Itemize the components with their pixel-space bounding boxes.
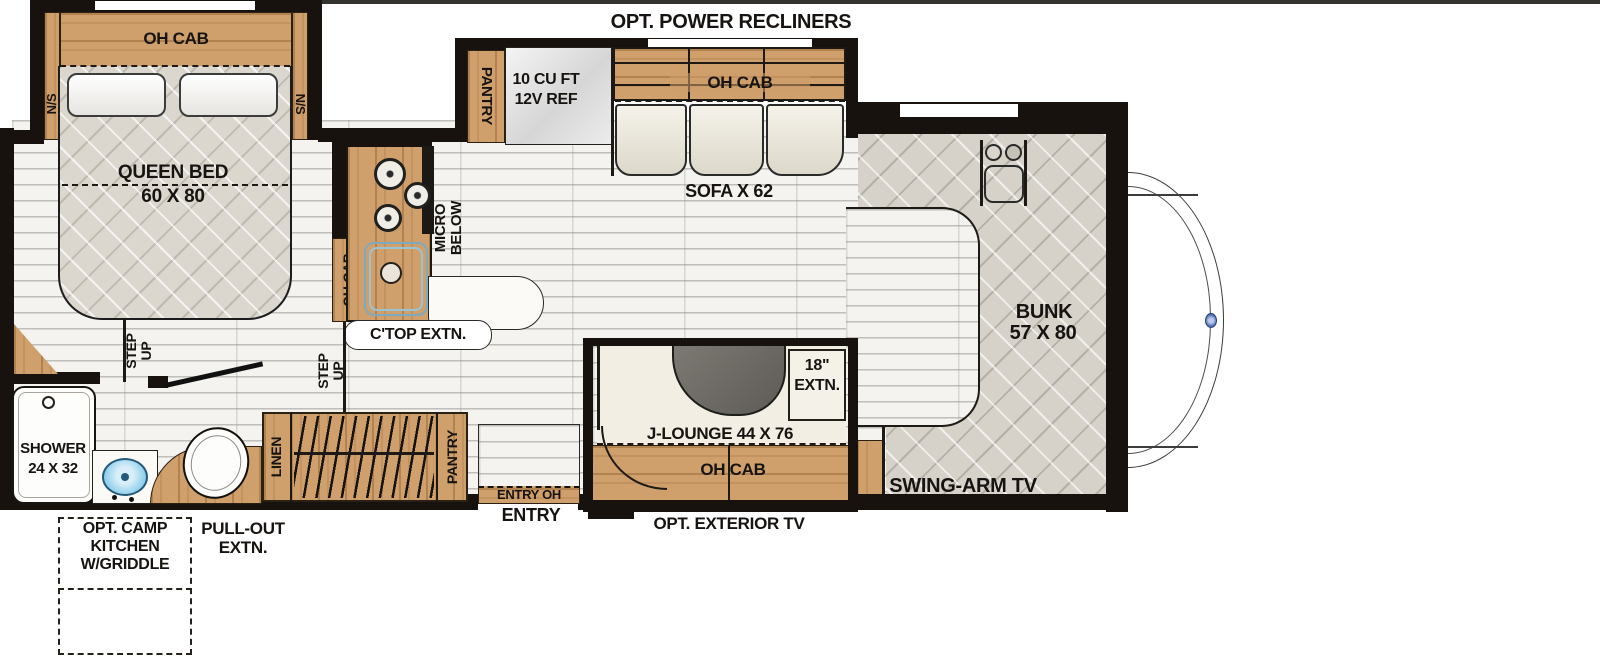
bunk-size-label: 57 X 80 bbox=[983, 322, 1103, 344]
camp-kitchen-label-2: KITCHEN bbox=[60, 538, 190, 556]
wardrobe-divider-right bbox=[436, 412, 438, 502]
top-edge-strip bbox=[322, 0, 1600, 4]
fridge-label-2: 12V REF bbox=[496, 91, 596, 109]
cab-brand-logo bbox=[1205, 313, 1217, 328]
front-right-wall bbox=[1106, 102, 1128, 512]
jlounge-seat-back-line bbox=[597, 346, 600, 430]
stove-burner-3 bbox=[374, 204, 402, 232]
lounge-oh-cab-label: OH CAB bbox=[663, 460, 803, 479]
wardrobe-divider-left bbox=[290, 412, 292, 502]
pillow-right bbox=[179, 73, 278, 117]
bunk-vent-knob-right bbox=[1005, 144, 1022, 161]
slide-pantry-label: PANTRY bbox=[478, 58, 494, 134]
swing-arm-tv-label: SWING-ARM TV bbox=[883, 475, 1043, 497]
sofa-cushion-1 bbox=[615, 104, 687, 176]
sofa-label: SOFA X 62 bbox=[659, 181, 799, 201]
jlounge-label: J-LOUNGE 44 X 76 bbox=[630, 424, 810, 443]
sofa-left-arm bbox=[611, 47, 614, 176]
bunk-vent-hatch bbox=[984, 165, 1024, 203]
entry-oh-label: ENTRY OH bbox=[497, 488, 561, 503]
pull-out-label-1: PULL-OUT bbox=[193, 519, 293, 538]
lounge-slide-foot bbox=[588, 512, 634, 519]
fridge-label-1: 10 CU FT bbox=[496, 71, 596, 89]
bedroom-window bbox=[95, 1, 255, 10]
shower-label: SHOWER bbox=[13, 441, 93, 458]
cab-windshield-bottom-line bbox=[1128, 446, 1198, 448]
sofa-cushion-3 bbox=[766, 104, 844, 176]
wardrobe-rod bbox=[294, 452, 434, 455]
sofa-slide-wall-left bbox=[455, 38, 467, 142]
linen-label: LINEN bbox=[268, 425, 284, 489]
front-window bbox=[900, 104, 1018, 117]
sofa-dash bbox=[615, 100, 845, 102]
stove-top-edge bbox=[346, 140, 432, 147]
aisle-floor bbox=[846, 207, 980, 427]
lounge-slide-wall-right bbox=[848, 338, 858, 512]
lounge-slide-wall-left bbox=[583, 338, 593, 512]
sofa-cushion-2 bbox=[689, 104, 764, 176]
sofa-oh-cab-label: OH CAB bbox=[670, 73, 810, 92]
bedroom-step-up-label: STEP UP bbox=[124, 316, 154, 386]
opt-power-recliners-label: OPT. POWER RECLINERS bbox=[581, 11, 881, 33]
bed-head-dash bbox=[60, 65, 290, 67]
bunk-vent-line-left bbox=[980, 140, 983, 206]
entry-label: ENTRY bbox=[491, 505, 571, 525]
extn-label-2: EXTN. bbox=[789, 377, 845, 395]
bed-slide-wall-left bbox=[30, 0, 44, 140]
lounge-slide-wall-bottom bbox=[583, 500, 858, 512]
queen-bed-label: QUEEN BED bbox=[93, 162, 253, 183]
shower-size-label: 24 X 32 bbox=[13, 461, 93, 478]
lounge-slide-wall-top bbox=[583, 338, 858, 346]
cab-windshield-top-line bbox=[1128, 194, 1198, 196]
rv-floorplan: OH CAB QUEEN BED 60 X 80 N/S N/S STEP UP… bbox=[0, 0, 1600, 668]
lav-sink-drain bbox=[121, 473, 129, 481]
nightstand-right-label: N/S bbox=[292, 82, 308, 126]
camp-kitchen-divider bbox=[58, 588, 192, 590]
kitchen-step-up-label: STEP UP bbox=[316, 336, 346, 406]
sofa-ohcab-shelf-1 bbox=[615, 62, 844, 64]
pillow-left bbox=[67, 73, 166, 117]
kitchen-divider-wall bbox=[332, 140, 346, 240]
kitchen-sink-drain bbox=[380, 262, 402, 284]
ctop-extn-pill: C'TOP EXTN. bbox=[344, 320, 492, 350]
lounge-dash bbox=[597, 443, 846, 445]
ctop-extn-label: C'TOP EXTN. bbox=[370, 326, 466, 344]
front-step-cabinet bbox=[856, 440, 884, 500]
stove-burner-2 bbox=[404, 182, 431, 209]
camp-kitchen-label-1: OPT. CAMP bbox=[60, 520, 190, 538]
stove-burner-1 bbox=[374, 158, 406, 190]
pull-out-label-2: EXTN. bbox=[193, 538, 293, 557]
bunk-vent-knob-left bbox=[985, 144, 1002, 161]
nightstand-left-label: N/S bbox=[44, 82, 60, 126]
wardrobe-hangers bbox=[294, 416, 434, 498]
bed-slide-wall-right bbox=[308, 0, 322, 140]
micro-below-label: MICRO BELOW bbox=[431, 183, 467, 273]
bunk-label: BUNK bbox=[984, 301, 1104, 323]
bedroom-oh-cab-label: OH CAB bbox=[106, 29, 246, 48]
entry-overhead: ENTRY OH bbox=[478, 486, 580, 504]
extn-label-1: 18" bbox=[789, 357, 845, 375]
entry-pantry-label: PANTRY bbox=[444, 417, 460, 497]
opt-exterior-tv-label: OPT. EXTERIOR TV bbox=[649, 514, 809, 533]
entry-landing bbox=[478, 424, 580, 488]
camp-kitchen-label-3: W/GRIDDLE bbox=[60, 556, 190, 574]
bunk-vent-line-right bbox=[1024, 140, 1027, 206]
queen-bed-size-label: 60 X 80 bbox=[113, 186, 233, 207]
sofa-slide-wall-right bbox=[846, 38, 858, 138]
lav-faucet-dot-1 bbox=[112, 495, 117, 500]
shower-drain bbox=[42, 396, 55, 409]
lav-faucet-dot-2 bbox=[129, 497, 134, 502]
